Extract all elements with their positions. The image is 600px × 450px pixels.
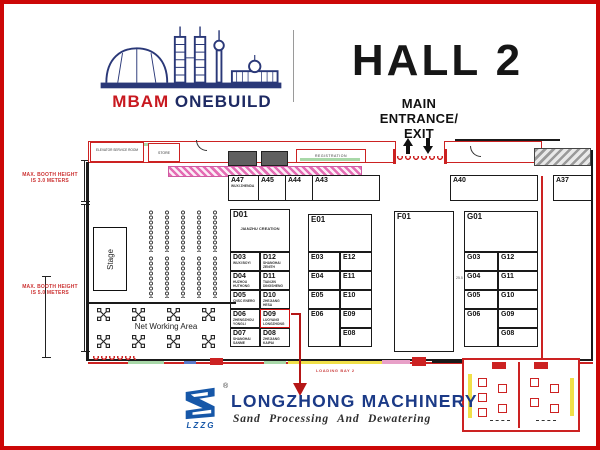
bottom-black-dash <box>432 361 462 363</box>
booth-g08: G08 <box>498 328 538 347</box>
networking-area-label: Net Working Area <box>92 322 240 331</box>
kl-skyline-icon <box>98 16 284 94</box>
seating-column <box>162 210 172 252</box>
lzzg-wordmark: LZZG <box>178 421 224 430</box>
entrance-curtain <box>396 156 444 163</box>
ramp-stairs <box>534 148 591 166</box>
booth-g04: G04 <box>464 271 498 290</box>
booth-a47: A47 WUXI ZHENDA <box>228 175 259 201</box>
table-icon <box>97 335 110 348</box>
booth-e05: E05 <box>308 290 340 309</box>
hall-title: HALL 2 <box>330 36 545 86</box>
dimension-line-bottom <box>84 204 85 352</box>
green-strip-registration <box>300 158 360 161</box>
seating-column <box>210 210 220 252</box>
loading-bay-label: LOADING BAY 2 <box>316 368 355 373</box>
table-icon <box>132 335 145 348</box>
seating-column <box>178 256 188 298</box>
entrance-label: MAIN ENTRANCE/ EXIT <box>358 97 480 142</box>
brand-mbam: MBAM <box>112 92 169 111</box>
f01-dimension: 25.5 <box>456 276 463 280</box>
dimension-line-top <box>84 160 85 202</box>
bottom-blue-strip <box>184 361 196 364</box>
bottom-red-box-2 <box>412 357 426 366</box>
booth-e06: E06 <box>308 309 340 347</box>
longzhong-brand: LONGZHONG MACHINERY <box>231 391 478 412</box>
entrance-up-arrow-icon <box>403 138 413 154</box>
bottom-pink-strip <box>382 360 410 364</box>
bottom-green-strip-1 <box>128 361 164 364</box>
table-icon <box>132 308 145 321</box>
seating-column <box>146 256 156 298</box>
booth-g05: G05 <box>464 290 498 309</box>
seating-column <box>178 210 188 252</box>
max-height-label-bottom: MAX. BOOTH HEIGHT IS 5.0 METERS <box>20 284 80 296</box>
booth-e08: E08 <box>340 328 372 347</box>
booth-d03: D03WUXI BOYI <box>230 252 260 271</box>
booth-g12: G12 <box>498 252 538 271</box>
table-icon <box>167 308 180 321</box>
booth-d04: D04HUZHOU HUTHONG <box>230 271 260 290</box>
brand-wordmark: MBAM ONEBUILD <box>98 92 286 112</box>
booth-g06: G06 <box>464 309 498 347</box>
booth-d08: D08ZHEJIANG KAIPAI <box>260 328 290 347</box>
booth-e10: E10 <box>340 290 372 309</box>
max-height-label-top: MAX. BOOTH HEIGHT IS 3.0 METERS <box>20 172 80 184</box>
booth-a43: A43 <box>312 175 380 201</box>
table-icon <box>202 308 215 321</box>
booth-e03: E03 <box>308 252 340 271</box>
entrance-line-1: MAIN <box>358 97 480 112</box>
booth-a45: A45 <box>258 175 286 201</box>
brand-onebuild: ONEBUILD <box>175 92 272 111</box>
booth-f01: F01 <box>394 211 454 352</box>
seating-column <box>194 210 204 252</box>
booth-e01: E01 <box>308 214 372 252</box>
left-wall <box>86 162 89 361</box>
table-icon <box>202 335 215 348</box>
longzhong-tagline: Sand Processing And Dewatering <box>233 413 431 425</box>
elevator-service-room: ELEVATOR SERVICE ROOM <box>90 142 144 162</box>
booth-g01: G01 <box>464 211 538 252</box>
booth-d05: D05CNSC ENERG <box>230 290 260 309</box>
booth-a40: A40 <box>450 175 538 201</box>
restroom-block <box>462 358 580 432</box>
stage: Stage <box>93 227 127 291</box>
d09-pointer-vertical <box>299 313 301 383</box>
seating-column <box>146 210 156 252</box>
booth-e11: E11 <box>340 271 372 290</box>
networking-divider-line <box>88 302 236 304</box>
table-icon <box>97 308 110 321</box>
store-room: STORE <box>148 143 180 162</box>
top-wall-right <box>444 141 542 163</box>
booth-d01: D01 JIANZHU CREATION <box>230 209 290 252</box>
booth-e04: E04 <box>308 271 340 290</box>
booth-d11: D11TIANJIN DINGSHENG <box>260 271 290 290</box>
booth-g03: G03 <box>464 252 498 271</box>
table-icon <box>167 335 180 348</box>
booth-g09: G09 <box>498 309 538 328</box>
office-box-1 <box>228 151 257 166</box>
lzzg-logo-icon <box>180 386 222 420</box>
booth-e09: E09 <box>340 309 372 328</box>
bottom-red-box-1 <box>210 358 223 365</box>
seating-column <box>210 256 220 298</box>
seating-column <box>194 256 204 298</box>
bottom-green-strip-2 <box>264 361 286 364</box>
inner-red-wall <box>541 176 543 358</box>
booth-g11: G11 <box>498 271 538 290</box>
booth-g10: G10 <box>498 290 538 309</box>
booth-a37: A37 <box>553 175 592 201</box>
booth-d09-highlighted: D09LUOYANG LONGZHONG <box>260 309 290 328</box>
booth-e12: E12 <box>340 252 372 271</box>
booth-a44: A44 <box>285 175 313 201</box>
entrance-jamb-right <box>444 149 447 164</box>
office-box-2 <box>261 151 288 166</box>
seating-column <box>162 256 172 298</box>
booth-d12: D12SHANGHAI ZENITH <box>260 252 290 271</box>
booth-d10: D10ZHEJIANG HESA <box>260 290 290 309</box>
entrance-down-arrow-icon <box>423 138 433 154</box>
top-boundary-line <box>455 139 560 141</box>
entrance-line-2: ENTRANCE/ <box>358 112 480 127</box>
hall-floorplan-flyer: MBAM ONEBUILD HALL 2 MAIN ENTRANCE/ EXIT… <box>0 0 600 450</box>
registered-mark: ® <box>223 383 228 390</box>
header-divider <box>293 30 294 102</box>
